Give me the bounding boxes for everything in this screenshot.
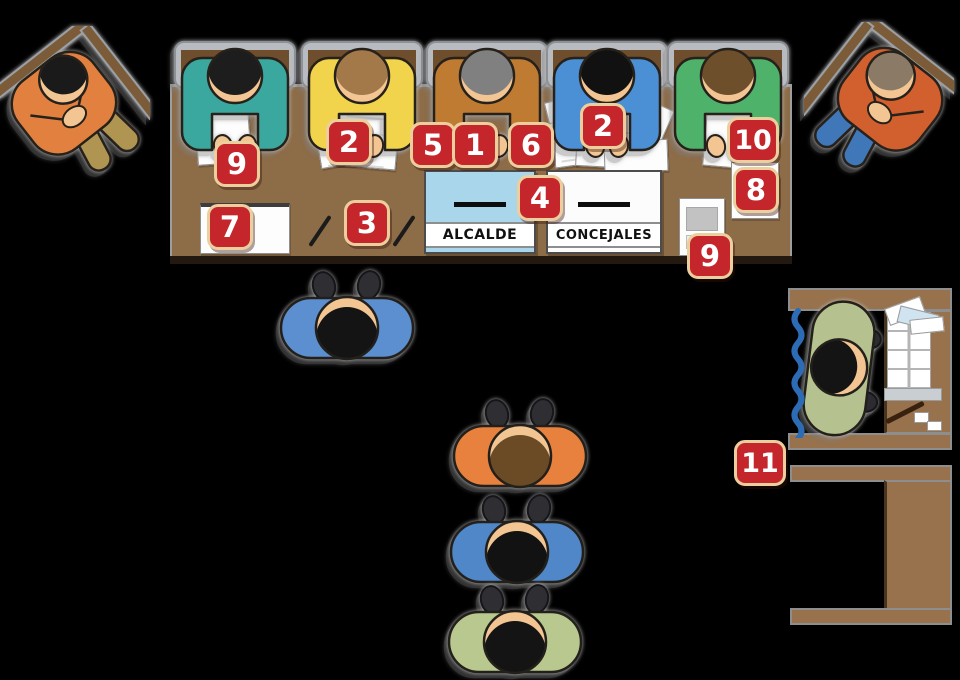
- callout-label: 10: [734, 125, 772, 156]
- polling-station-scene: ALCALDE CONCEJALES: [0, 0, 960, 672]
- callout-10: 10: [727, 117, 779, 163]
- callout-4: 4: [517, 175, 563, 221]
- callout-label: 5: [423, 128, 443, 162]
- ballot-slot: [578, 202, 630, 207]
- voter-queue-4: [445, 584, 585, 680]
- booth2-wall-right: [884, 480, 952, 610]
- callout-1: 1: [452, 122, 498, 168]
- voter-queue-3: [447, 494, 587, 590]
- ballot-box-label: CONCEJALES: [548, 222, 660, 248]
- callout-2a: 2: [326, 119, 372, 165]
- callout-3: 3: [344, 200, 390, 246]
- voter-queue-2: [450, 398, 590, 494]
- callout-label: 9: [700, 239, 720, 273]
- callout-label: 9: [227, 147, 247, 181]
- callout-label: 3: [357, 206, 377, 240]
- ballot-box-label: ALCALDE: [426, 222, 534, 248]
- booth2-wall-bottom: [790, 608, 952, 625]
- callout-7: 7: [207, 204, 253, 250]
- callout-2b: 2: [580, 103, 626, 149]
- ballot-slot: [454, 202, 506, 207]
- ballot-shelf-base: [884, 388, 942, 401]
- hand: [705, 133, 727, 158]
- paper-scrap: [927, 421, 942, 431]
- callout-11: 11: [734, 440, 786, 486]
- callout-9b: 9: [687, 233, 733, 279]
- callout-9a: 9: [214, 141, 260, 187]
- callout-label: 2: [339, 125, 359, 159]
- callout-label: 6: [521, 128, 541, 162]
- callout-6: 6: [508, 122, 554, 168]
- callout-label: 1: [465, 128, 485, 162]
- callout-label: 4: [530, 181, 550, 215]
- pad-gray-block: [686, 207, 718, 231]
- shoe: [523, 584, 551, 615]
- poll-worker-green: [663, 36, 793, 186]
- shoe: [355, 270, 383, 301]
- callout-8: 8: [733, 167, 779, 213]
- callout-label: 7: [220, 210, 240, 244]
- shoe: [525, 494, 553, 525]
- callout-5: 5: [410, 122, 456, 168]
- callout-label: 2: [593, 109, 613, 143]
- shoe: [528, 398, 556, 429]
- booth-curtain: [789, 308, 807, 438]
- callout-label: 8: [746, 173, 766, 207]
- observer-right: [804, 22, 954, 182]
- callout-label: 11: [741, 448, 779, 479]
- observer-left: [0, 26, 150, 186]
- voter-queue-1: [277, 270, 417, 366]
- voter-in-booth: [798, 296, 890, 442]
